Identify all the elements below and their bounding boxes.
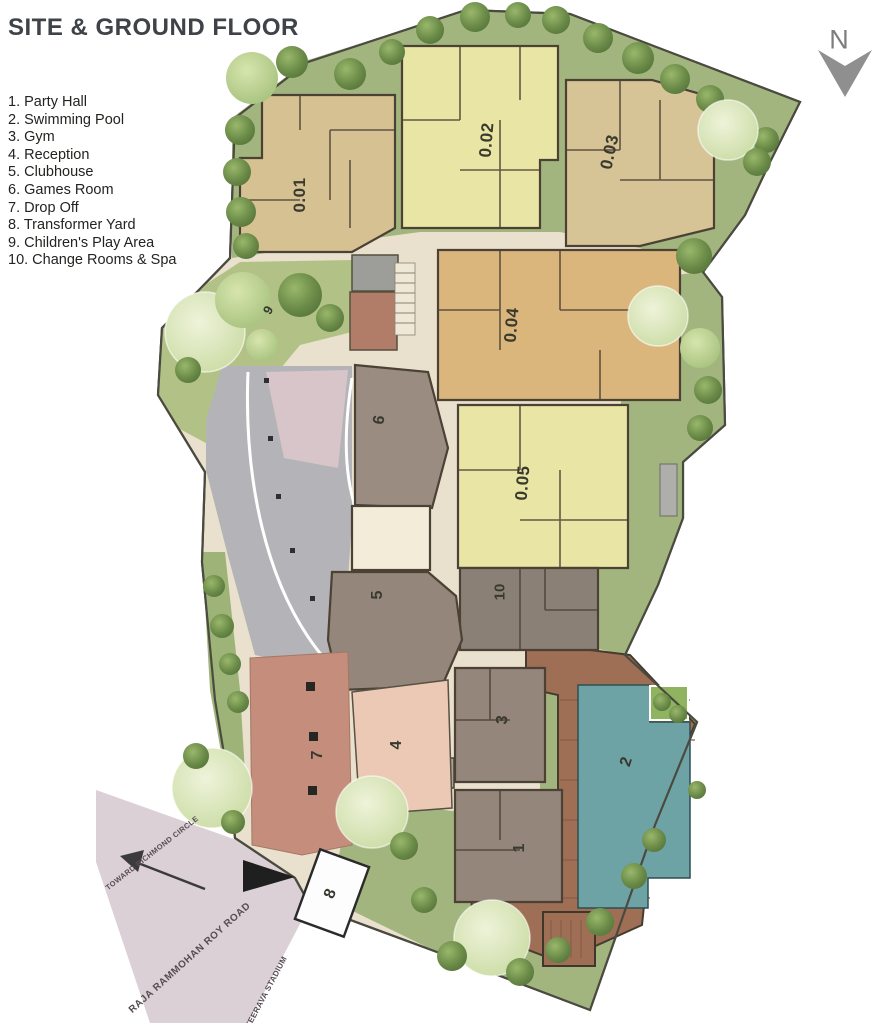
unit-label-0-02: 0.02 bbox=[476, 122, 499, 159]
building-0-01 bbox=[240, 95, 395, 252]
north-arrow-icon bbox=[818, 50, 872, 97]
building-0-05 bbox=[458, 405, 628, 568]
stairs bbox=[395, 263, 415, 335]
unit-label-0-01: 0.01 bbox=[290, 177, 310, 212]
legend-item-gym: 3. Gym bbox=[8, 129, 176, 147]
legend-item-party-hall: 1. Party Hall bbox=[8, 94, 176, 112]
brick-terrace bbox=[350, 292, 397, 350]
legend-item-transformer-yard: 8. Transformer Yard bbox=[8, 217, 176, 235]
page-title: SITE & GROUND FLOOR bbox=[8, 14, 299, 42]
area-label-reception: 4 bbox=[388, 741, 406, 750]
unit-label-0-04: 0.04 bbox=[501, 307, 524, 344]
area-label-change-rooms-spa: 10 bbox=[492, 584, 509, 601]
planter-slab bbox=[660, 464, 677, 516]
unit-label-0-05: 0.05 bbox=[512, 465, 535, 502]
building-0-03 bbox=[566, 80, 714, 246]
site-plan-page: SITE & GROUND FLOOR 1. Party Hall 2. Swi… bbox=[0, 0, 876, 1023]
legend-item-drop-off: 7. Drop Off bbox=[8, 200, 176, 218]
building-change-rooms bbox=[460, 568, 598, 650]
legend: 1. Party Hall 2. Swimming Pool 3. Gym 4.… bbox=[8, 94, 176, 270]
building-gym bbox=[455, 668, 545, 782]
area-label-clubhouse: 5 bbox=[369, 591, 387, 600]
compass-label: N bbox=[829, 25, 849, 56]
legend-item-change-rooms-spa: 10. Change Rooms & Spa bbox=[8, 252, 176, 270]
area-label-party-hall: 1 bbox=[511, 844, 529, 853]
building-annex bbox=[352, 506, 430, 570]
drop-off-paving bbox=[250, 652, 352, 855]
area-label-gym: 3 bbox=[494, 715, 513, 725]
legend-item-reception: 4. Reception bbox=[8, 147, 176, 165]
legend-item-swimming-pool: 2. Swimming Pool bbox=[8, 112, 176, 130]
legend-item-clubhouse: 5. Clubhouse bbox=[8, 164, 176, 182]
legend-item-childrens-play-area: 9. Children's Play Area bbox=[8, 235, 176, 253]
legend-item-games-room: 6. Games Room bbox=[8, 182, 176, 200]
area-label-drop-off: 7 bbox=[309, 751, 327, 760]
building-party-hall bbox=[455, 790, 562, 902]
utility-block bbox=[352, 255, 398, 291]
